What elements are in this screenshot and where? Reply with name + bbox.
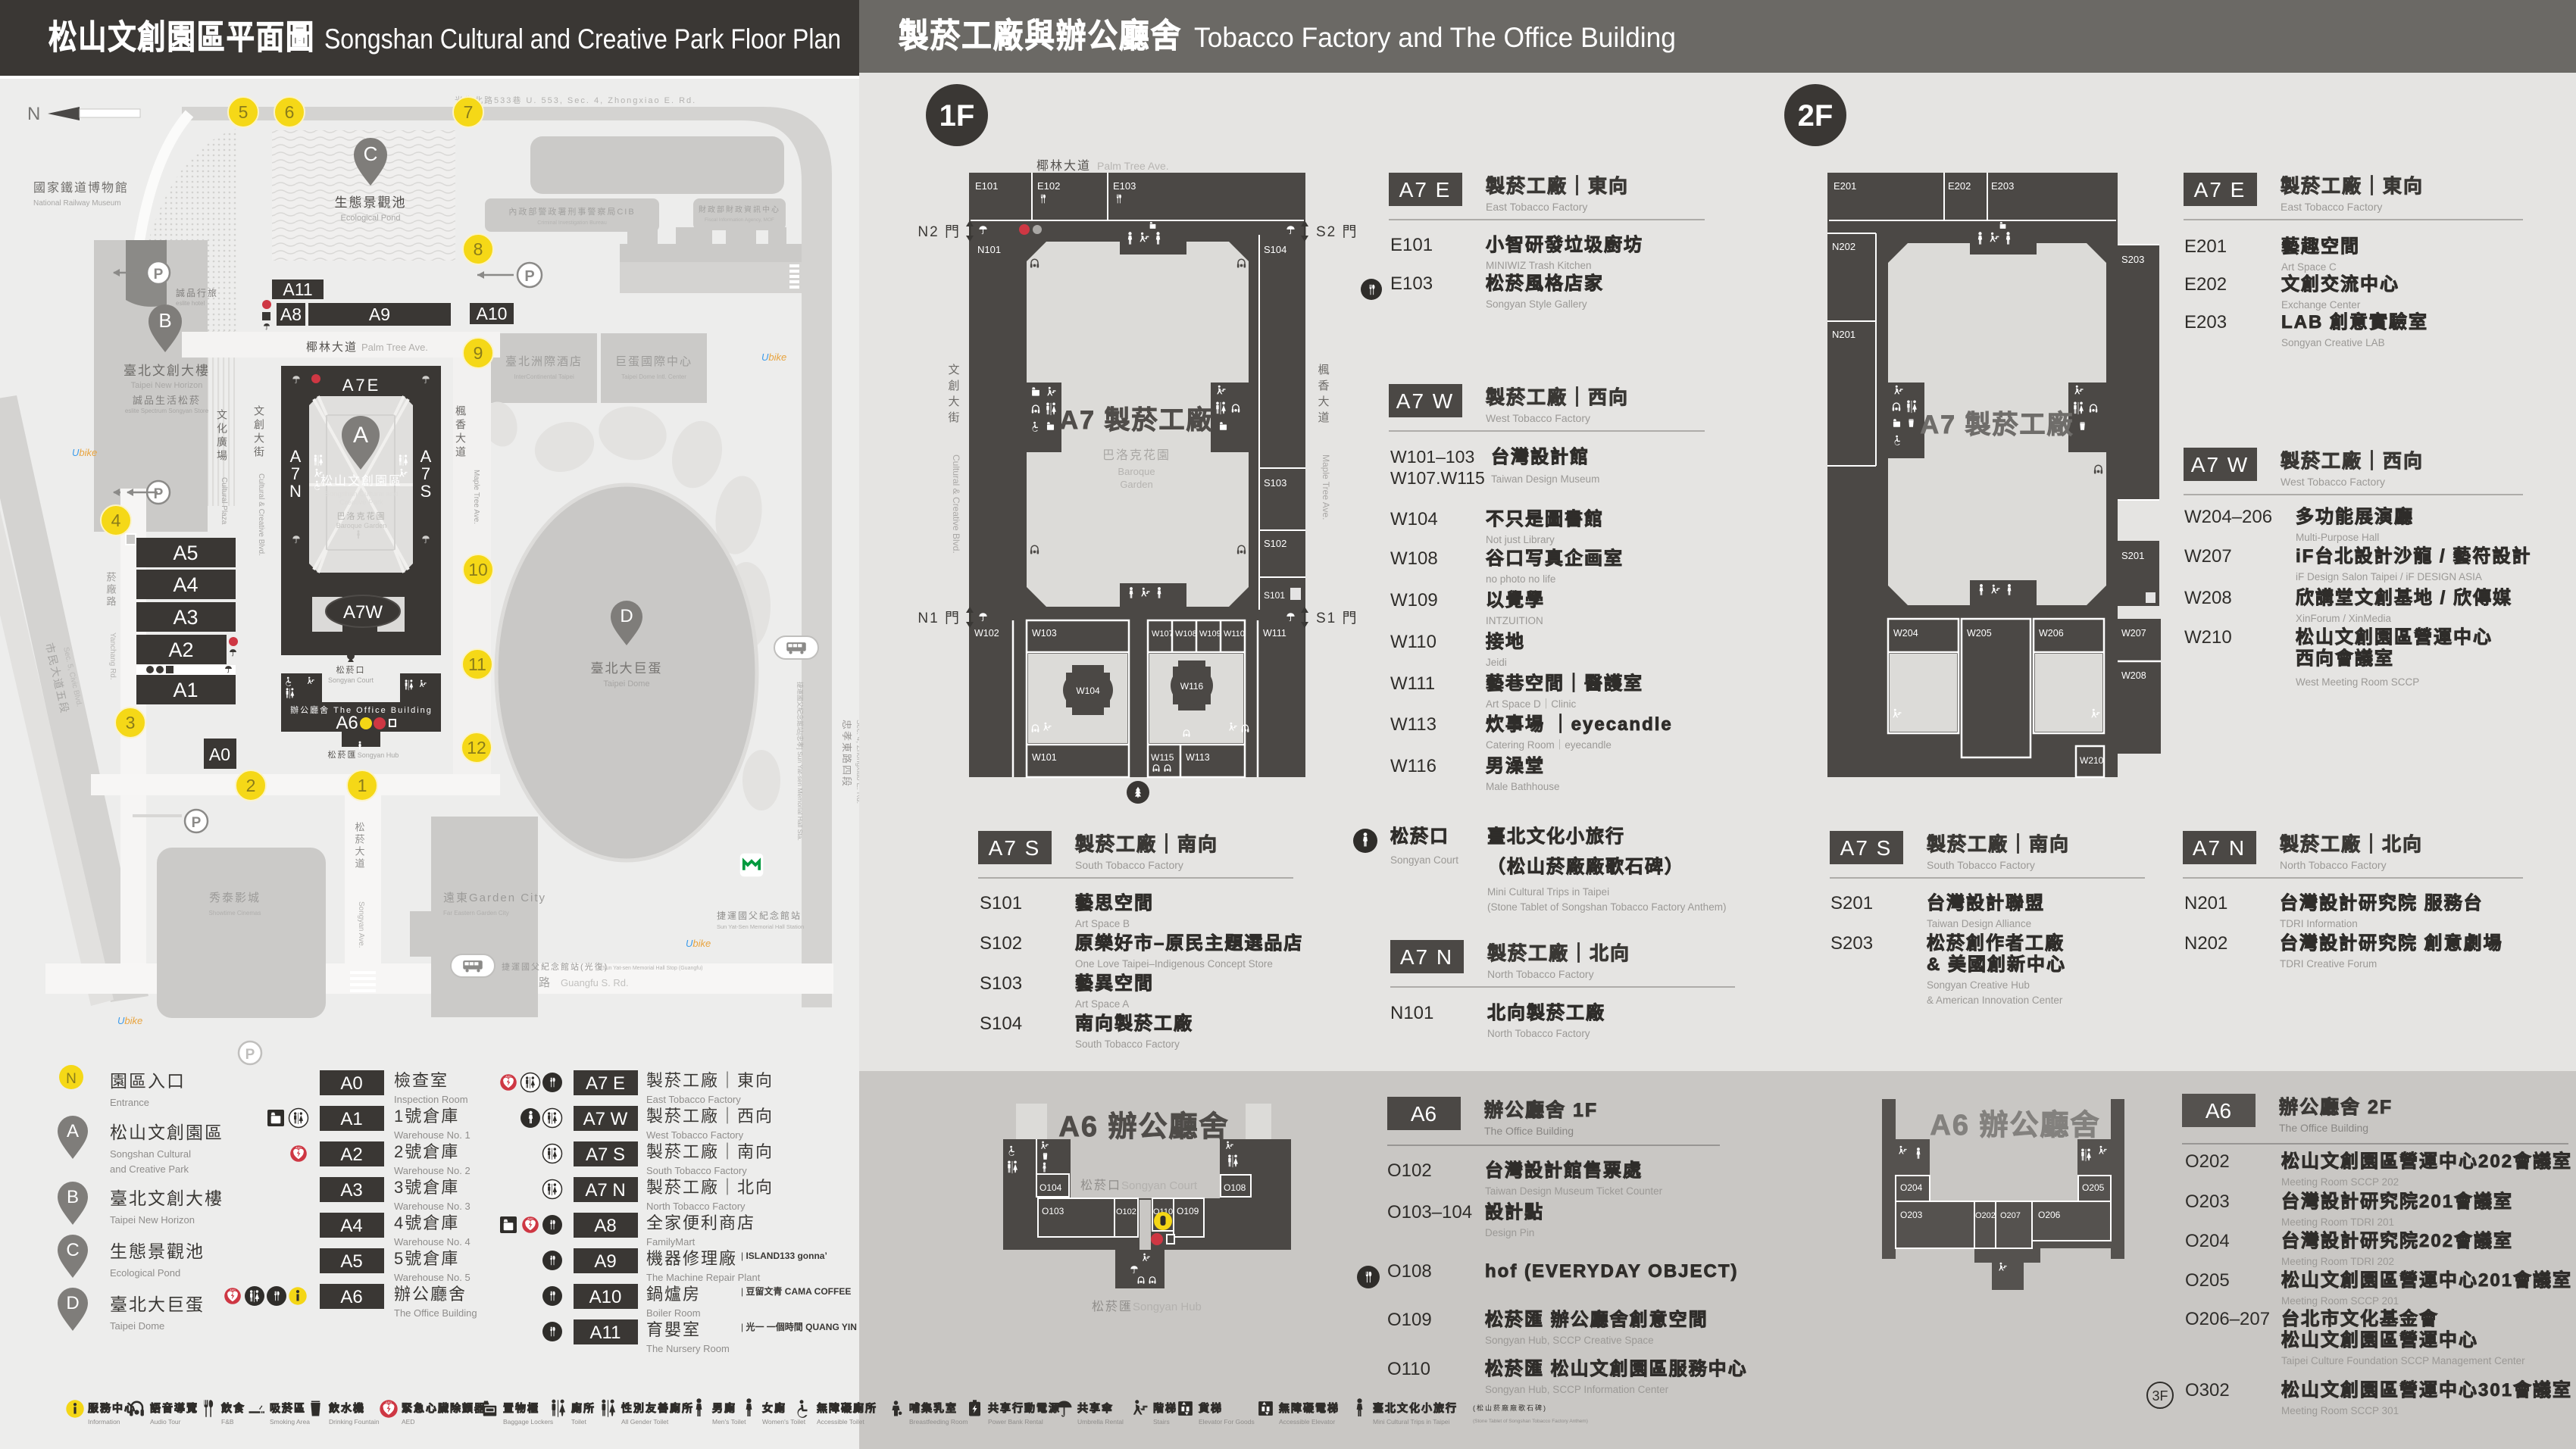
svg-text:Art Space A: Art Space A: [1075, 998, 1129, 1010]
svg-text:文化廣場: 文化廣場: [216, 409, 228, 464]
svg-text:MINIWIZ Trash Kitchen: MINIWIZ Trash Kitchen: [1486, 260, 1592, 271]
svg-text:Ecological Pond: Ecological Pond: [341, 214, 401, 223]
svg-text:臺北大巨蛋: 臺北大巨蛋: [110, 1294, 205, 1314]
svg-text:松菸匯: 松菸匯: [1092, 1300, 1133, 1313]
svg-text:財政部財政資訊中心: 財政部財政資訊中心: [699, 205, 780, 214]
svg-text:South Tobacco Factory: South Tobacco Factory: [1927, 859, 2035, 871]
svg-text:2: 2: [246, 776, 256, 795]
svg-text:| 豆留文青 CAMA COFFEE: | 豆留文青 CAMA COFFEE: [741, 1285, 851, 1297]
svg-text:Audio Tour: Audio Tour: [150, 1418, 181, 1426]
svg-text:以覺學: 以覺學: [1486, 590, 1545, 611]
svg-text:S: S: [420, 482, 432, 501]
svg-text:O109: O109: [1387, 1310, 1432, 1330]
svg-text:N2 門: N2 門: [918, 224, 961, 240]
svg-text:服務中心: 服務中心: [88, 1402, 136, 1414]
svg-text:InterContinental Taipei: InterContinental Taipei: [514, 373, 574, 380]
svg-text:South Tobacco Factory: South Tobacco Factory: [646, 1165, 747, 1176]
svg-text:哺集乳室: 哺集乳室: [909, 1402, 958, 1414]
svg-text:(Stone Tablet of Songshan Toba: (Stone Tablet of Songshan Tobacco Factor…: [1487, 901, 1726, 913]
svg-text:Cultural & Creative Blvd.: Cultural & Creative Blvd.: [257, 473, 265, 556]
svg-text:A11: A11: [590, 1323, 621, 1343]
svg-text:捷運國父紀念館站[忠孝] Sun Yat-sen Memo: 捷運國父紀念館站[忠孝] Sun Yat-sen Memorial Hall S…: [796, 682, 804, 841]
svg-text:A6 辦公廳舍: A6 辦公廳舍: [1930, 1110, 2100, 1141]
svg-text:松菸創作者工廠: 松菸創作者工廠: [1927, 932, 2065, 954]
svg-text:松山文創園區營運中心: 松山文創園區營運中心: [2296, 626, 2493, 648]
svg-text:5號倉庫: 5號倉庫: [394, 1249, 459, 1268]
svg-text:W108: W108: [1175, 629, 1197, 639]
svg-text:4: 4: [111, 511, 121, 530]
svg-text:松菸匯 辦公廳舍創意空間: 松菸匯 辦公廳舍創意空間: [1485, 1309, 1708, 1330]
svg-text:多功能展演廳: 多功能展演廳: [2296, 506, 2414, 527]
svg-text:國家鐵道博物館: 國家鐵道博物館: [33, 180, 129, 195]
svg-text:O203: O203: [1900, 1210, 1923, 1220]
svg-text:4號倉庫: 4號倉庫: [394, 1213, 459, 1232]
svg-text:松菸匯 松山文創園區服務中心: 松菸匯 松山文創園區服務中心: [1485, 1358, 1748, 1379]
svg-text:Design Pin: Design Pin: [1485, 1227, 1534, 1238]
svg-text:Tobacco Factory and The Office: Tobacco Factory and The Office Building: [1194, 22, 1676, 53]
svg-text:TDRI Creative Forum: TDRI Creative Forum: [2280, 958, 2377, 970]
svg-text:Women's Toilet: Women's Toilet: [762, 1418, 806, 1426]
svg-text:A3: A3: [173, 606, 198, 629]
svg-text:製菸工廠與辦公廳舍: 製菸工廠與辦公廳舍: [899, 17, 1182, 55]
svg-text:P: P: [245, 1047, 255, 1063]
svg-text:Songshan Cultural: Songshan Cultural: [110, 1148, 191, 1160]
svg-text:A7 製菸工廠: A7 製菸工廠: [1060, 405, 1214, 435]
svg-text:無障礙電梯: 無障礙電梯: [1279, 1402, 1340, 1414]
svg-text:製菸工廠｜西向: 製菸工廠｜西向: [646, 1107, 774, 1126]
svg-text:A7 製菸工廠: A7 製菸工廠: [1921, 410, 2074, 439]
svg-text:A4: A4: [340, 1216, 362, 1236]
svg-text:W207: W207: [2184, 546, 2232, 567]
svg-text:& 美國創新中心: & 美國創新中心: [1927, 954, 2066, 975]
svg-text:East Tobacco Factory: East Tobacco Factory: [646, 1094, 741, 1105]
svg-text:S102: S102: [1264, 538, 1286, 549]
svg-text:男廁: 男廁: [712, 1402, 736, 1414]
svg-text:Warehouse No. 5: Warehouse No. 5: [394, 1272, 470, 1283]
svg-text:誠品行旅: 誠品行旅: [176, 288, 218, 298]
svg-text:Taipei Dome: Taipei Dome: [110, 1320, 164, 1332]
svg-text:貨梯: 貨梯: [1198, 1402, 1223, 1414]
svg-text:Songshan Cultural and Creative: Songshan Cultural and Creative Park Floo…: [324, 23, 841, 55]
svg-text:A11: A11: [283, 279, 312, 299]
svg-text:Warehouse No. 1: Warehouse No. 1: [394, 1129, 470, 1141]
svg-text:楓香大道: 楓香大道: [1317, 364, 1330, 427]
svg-text:吸菸區: 吸菸區: [270, 1402, 306, 1414]
svg-text:Taipei Culture Foundation SCCP: Taipei Culture Foundation SCCP Managemen…: [2281, 1355, 2525, 1366]
svg-text:Meeting Room TDRI 202: Meeting Room TDRI 202: [2281, 1256, 2394, 1267]
svg-text:S102: S102: [980, 933, 1022, 954]
svg-text:W103: W103: [1032, 628, 1057, 639]
svg-text:O205: O205: [2185, 1270, 2230, 1291]
svg-text:A7 E: A7 E: [2194, 178, 2246, 201]
svg-text:Taiwan Design Museum Ticket Co: Taiwan Design Museum Ticket Counter: [1485, 1185, 1663, 1197]
svg-text:Elevator For Goods: Elevator For Goods: [1199, 1418, 1255, 1426]
svg-text:East Tobacco Factory: East Tobacco Factory: [1486, 201, 1587, 213]
svg-text:The Nursery Room: The Nursery Room: [646, 1343, 730, 1354]
svg-text:A9: A9: [594, 1251, 616, 1272]
svg-text:W109: W109: [1199, 629, 1221, 639]
svg-text:共享傘: 共享傘: [1077, 1402, 1114, 1414]
svg-text:S104: S104: [980, 1013, 1022, 1034]
svg-text:生態景觀池: 生態景觀池: [335, 195, 407, 210]
svg-text:A8: A8: [280, 304, 302, 324]
svg-text:The Office Building: The Office Building: [2279, 1122, 2368, 1134]
svg-text:A3: A3: [340, 1180, 362, 1201]
svg-text:Information: Information: [88, 1418, 120, 1426]
svg-text:Baroque: Baroque: [1118, 466, 1155, 477]
svg-text:A7 S: A7 S: [586, 1145, 625, 1165]
svg-text:A7 N: A7 N: [1400, 945, 1453, 969]
svg-text:6: 6: [285, 102, 295, 122]
svg-text:A9: A9: [369, 304, 390, 324]
svg-text:Cultural & Creative Blvd.: Cultural & Creative Blvd.: [951, 454, 961, 554]
svg-text:E102: E102: [1037, 180, 1060, 192]
svg-text:Songyan Court: Songyan Court: [1390, 854, 1458, 866]
svg-text:10: 10: [468, 560, 488, 579]
svg-text:廁所: 廁所: [571, 1402, 596, 1414]
svg-text:A0: A0: [340, 1073, 362, 1094]
svg-text:台灣設計館售票處: 台灣設計館售票處: [1485, 1160, 1643, 1181]
svg-text:A1: A1: [340, 1109, 362, 1129]
svg-text:Jeidi: Jeidi: [1486, 657, 1507, 668]
svg-text:南向製菸工廠: 南向製菸工廠: [1075, 1013, 1193, 1034]
svg-text:A5: A5: [173, 542, 198, 564]
svg-text:Maple Tree Ave.: Maple Tree Ave.: [472, 470, 480, 524]
svg-text:Warehouse No. 4: Warehouse No. 4: [394, 1236, 470, 1248]
svg-text:松菸口: 松菸口: [336, 664, 366, 675]
svg-text:D: D: [620, 606, 633, 626]
svg-text:Songyan Hub, SCCP Creative Spa: Songyan Hub, SCCP Creative Space: [1485, 1335, 1654, 1346]
svg-text:文創交流中心: 文創交流中心: [2281, 273, 2399, 295]
svg-text:A7 N: A7 N: [2193, 836, 2246, 860]
svg-text:台灣設計館: 台灣設計館: [1491, 446, 1590, 467]
svg-text:A6: A6: [2206, 1099, 2231, 1123]
svg-text:Songyan Hub: Songyan Hub: [358, 751, 399, 759]
svg-text:W205: W205: [1967, 628, 1992, 639]
svg-text:O205: O205: [2082, 1182, 2105, 1193]
svg-text:5: 5: [239, 102, 249, 122]
svg-text:松山文創園區平面圖: 松山文創園區平面圖: [48, 19, 315, 56]
svg-text:A8: A8: [594, 1216, 616, 1236]
svg-text:Ubike: Ubike: [761, 351, 786, 363]
svg-text:N101: N101: [977, 244, 1001, 255]
svg-text:A2: A2: [340, 1145, 362, 1165]
svg-text:O202: O202: [1975, 1211, 1996, 1220]
svg-text:性別友善廁所: 性別友善廁所: [621, 1402, 694, 1414]
svg-text:O108: O108: [1224, 1182, 1246, 1193]
svg-text:W204–206: W204–206: [2184, 507, 2272, 527]
svg-text:Songyan Hub: Songyan Hub: [1133, 1301, 1202, 1313]
svg-text:松山文創園區營運中心301會議室: 松山文創園區營運中心301會議室: [2281, 1379, 2572, 1401]
svg-text:W107.W115: W107.W115: [1390, 468, 1485, 488]
svg-text:eslite Spectrum Songyan Store: eslite Spectrum Songyan Store: [125, 408, 209, 414]
svg-text:P: P: [154, 267, 164, 283]
svg-text:North Tobacco Factory: North Tobacco Factory: [646, 1201, 746, 1212]
svg-text:育嬰室: 育嬰室: [646, 1320, 701, 1339]
svg-text:eslite hotel: eslite hotel: [176, 300, 205, 307]
svg-text:全家便利商店: 全家便利商店: [646, 1213, 755, 1232]
svg-text:台北市文化基金會: 台北市文化基金會: [2281, 1308, 2439, 1329]
svg-text:W108: W108: [1390, 548, 1438, 569]
svg-text:無障礙廁所: 無障礙廁所: [817, 1402, 877, 1414]
svg-text:Songshan Cultural and: Songshan Cultural and: [325, 490, 399, 498]
svg-text:W206: W206: [2039, 628, 2064, 639]
svg-text:A6: A6: [340, 1287, 362, 1307]
svg-text:N201: N201: [2184, 893, 2227, 913]
svg-text:製菸工廠｜北向: 製菸工廠｜北向: [646, 1178, 774, 1197]
svg-text:製菸工廠｜南向: 製菸工廠｜南向: [1074, 833, 1218, 855]
svg-text:3: 3: [126, 713, 136, 732]
svg-text:P: P: [524, 268, 534, 285]
svg-text:生態景觀池: 生態景觀池: [110, 1241, 205, 1261]
svg-text:W107: W107: [1152, 629, 1174, 639]
svg-text:All Gender Toilet: All Gender Toilet: [621, 1418, 669, 1426]
svg-text:W113: W113: [1390, 714, 1436, 735]
svg-text:W204: W204: [1893, 628, 1918, 639]
svg-text:辦公廳舍 2F: 辦公廳舍 2F: [2279, 1096, 2393, 1118]
svg-text:A6: A6: [1411, 1102, 1436, 1126]
svg-text:A7 N: A7 N: [585, 1180, 625, 1201]
svg-text:INTZUITION: INTZUITION: [1486, 615, 1543, 626]
svg-text:A6: A6: [336, 713, 358, 733]
svg-text:Songyan Style Gallery: Songyan Style Gallery: [1486, 298, 1587, 310]
svg-text:hof (EVERYDAY OBJECT): hof (EVERYDAY OBJECT): [1485, 1261, 1739, 1282]
svg-text:E101: E101: [1390, 235, 1433, 255]
svg-text:E101: E101: [975, 180, 998, 192]
svg-text:Guangfu S. Rd.: Guangfu S. Rd.: [561, 977, 629, 988]
svg-text:巴洛克花園: 巴洛克花園: [1102, 448, 1171, 462]
svg-text:S101: S101: [1264, 590, 1285, 601]
svg-text:Ubike: Ubike: [686, 938, 711, 949]
svg-text:台灣設計研究院 創意劇場: 台灣設計研究院 創意劇場: [2280, 932, 2503, 954]
svg-text:文創大街: 文創大街: [253, 405, 265, 460]
svg-text:N: N: [289, 482, 302, 501]
svg-text:台灣設計研究院202會議室: 台灣設計研究院202會議室: [2281, 1230, 2513, 1251]
svg-text:Multi-Purpose Hall: Multi-Purpose Hall: [2296, 532, 2379, 543]
svg-text:藝巷空間｜醫護室: 藝巷空間｜醫護室: [1486, 673, 1643, 694]
svg-text:製菸工廠｜東向: 製菸工廠｜東向: [646, 1071, 774, 1090]
svg-text:D: D: [66, 1293, 79, 1313]
svg-text:1號倉庫: 1號倉庫: [394, 1107, 459, 1126]
svg-text:Palm Tree Ave.: Palm Tree Ave.: [361, 342, 428, 353]
svg-text:製菸工廠｜南向: 製菸工廠｜南向: [1926, 833, 2070, 855]
svg-text:A0: A0: [209, 745, 230, 764]
svg-text:12: 12: [467, 738, 486, 757]
svg-text:文創大街: 文創大街: [947, 364, 960, 427]
svg-text:臺北文化小旅行: 臺北文化小旅行: [1373, 1402, 1458, 1414]
svg-text:W116: W116: [1390, 756, 1436, 776]
svg-text:W101: W101: [1032, 752, 1057, 763]
svg-text:O207: O207: [2000, 1211, 2021, 1220]
svg-text:O102: O102: [1387, 1160, 1432, 1181]
svg-text:辦公廳舍 The Office Building: 辦公廳舍 The Office Building: [290, 704, 433, 715]
svg-text:W111: W111: [1263, 628, 1286, 639]
svg-text:（松山菸廠廠歌石碑）: （松山菸廠廠歌石碑）: [1487, 856, 1684, 877]
svg-text:原樂好市–原民主題選品店: 原樂好市–原民主題選品店: [1075, 932, 1303, 954]
svg-text:語音導覽: 語音導覽: [150, 1402, 199, 1414]
svg-text:O203: O203: [2185, 1191, 2230, 1212]
svg-text:W110: W110: [1224, 629, 1245, 639]
svg-text:E203: E203: [2184, 312, 2227, 333]
svg-text:E203: E203: [1991, 180, 2014, 192]
svg-text:| 光一 一個時間 QUANG YIN: | 光一 一個時間 QUANG YIN: [741, 1321, 857, 1332]
svg-text:A1: A1: [173, 679, 198, 701]
svg-text:W109: W109: [1390, 590, 1438, 611]
svg-text:One Love Taipei–Indigenous Con: One Love Taipei–Indigenous Concept Store: [1075, 958, 1273, 970]
svg-text:Yanchang Rd.: Yanchang Rd.: [108, 632, 117, 680]
svg-text:Breastfeeding Room: Breastfeeding Room: [909, 1418, 968, 1426]
svg-text:The Office Building: The Office Building: [394, 1307, 477, 1319]
svg-text:S201: S201: [2121, 550, 2144, 561]
svg-text:飲水機: 飲水機: [328, 1402, 365, 1414]
svg-text:Songyan Creative LAB: Songyan Creative LAB: [2281, 337, 2385, 348]
svg-text:W207: W207: [2121, 628, 2146, 639]
svg-text:檢查室: 檢查室: [394, 1071, 449, 1090]
svg-text:7: 7: [291, 464, 300, 483]
svg-text:W111: W111: [1390, 673, 1435, 694]
svg-text:N202: N202: [2184, 933, 2227, 954]
svg-text:誠品生活松菸: 誠品生活松菸: [133, 395, 201, 406]
svg-text:Fiscal Information Agency, MOF: Fiscal Information Agency, MOF: [705, 217, 774, 223]
svg-text:松菸風格店家: 松菸風格店家: [1486, 273, 1604, 294]
svg-text:製菸工廠｜北向: 製菸工廠｜北向: [1487, 942, 1630, 964]
svg-text:O206: O206: [2038, 1210, 2061, 1220]
svg-text:女廁: 女廁: [762, 1402, 786, 1414]
svg-text:設計點: 設計點: [1485, 1201, 1544, 1223]
svg-text:Maple Tree Ave.: Maple Tree Ave.: [1321, 454, 1331, 520]
svg-text:楓香大道: 楓香大道: [455, 405, 467, 460]
svg-text:The Machine Repair Plant: The Machine Repair Plant: [646, 1272, 761, 1283]
svg-text:臺北大巨蛋: 臺北大巨蛋: [591, 661, 663, 676]
svg-text:松山文創園區營運中心: 松山文創園區營運中心: [2281, 1329, 2478, 1351]
svg-text:P: P: [154, 486, 164, 502]
svg-text:Showtime Cinemas: Showtime Cinemas: [209, 910, 261, 917]
svg-text:秀泰影城: 秀泰影城: [209, 892, 261, 904]
svg-text:East Tobacco Factory: East Tobacco Factory: [2281, 201, 2382, 213]
svg-text:| ISLAND133 gonna’: | ISLAND133 gonna’: [741, 1251, 827, 1261]
svg-text:O202: O202: [2185, 1151, 2230, 1172]
svg-text:A: A: [353, 423, 368, 448]
svg-text:S2 門: S2 門: [1316, 224, 1358, 240]
svg-text:Mini Cultural Trips in Taipei: Mini Cultural Trips in Taipei: [1487, 886, 1609, 898]
svg-text:E201: E201: [1834, 180, 1856, 192]
svg-text:E202: E202: [2184, 274, 2227, 295]
svg-text:W104: W104: [1390, 509, 1438, 529]
svg-text:椰林大道: 椰林大道: [1036, 159, 1091, 173]
svg-text:S203: S203: [2121, 254, 2144, 265]
svg-text:A5: A5: [340, 1251, 362, 1272]
svg-text:Sun Yat-sen Memorial Hall Stop: Sun Yat-sen Memorial Hall Stop (Guangfu): [602, 966, 702, 971]
svg-text:O102: O102: [1116, 1207, 1136, 1216]
svg-text:1: 1: [358, 776, 367, 795]
svg-text:接地: 接地: [1486, 632, 1525, 652]
svg-text:W113: W113: [1186, 752, 1210, 763]
svg-text:Meeting Room SCCP 301: Meeting Room SCCP 301: [2281, 1405, 2399, 1416]
svg-text:B: B: [158, 309, 171, 332]
svg-text:A7 E: A7 E: [1399, 178, 1452, 201]
svg-text:Entrance: Entrance: [110, 1097, 149, 1108]
svg-text:2F: 2F: [1798, 99, 1834, 133]
svg-text:National Railway Museum: National Railway Museum: [33, 199, 121, 208]
svg-text:置物櫃: 置物櫃: [503, 1402, 539, 1414]
svg-text:機器修理廠: 機器修理廠: [646, 1249, 737, 1268]
svg-text:P: P: [192, 815, 202, 831]
svg-text:S1 門: S1 門: [1316, 611, 1358, 626]
svg-text:E202: E202: [1948, 180, 1971, 192]
svg-text:S103: S103: [1264, 477, 1286, 489]
svg-text:A7E: A7E: [342, 376, 381, 395]
svg-text:製菸工廠｜南向: 製菸工廠｜南向: [646, 1142, 774, 1161]
svg-text:(松山菸廠廠歌石碑): (松山菸廠廠歌石碑): [1473, 1404, 1547, 1412]
svg-text:A10: A10: [477, 304, 508, 323]
svg-text:台灣設計聯盟: 台灣設計聯盟: [1927, 892, 2045, 913]
svg-text:松菸匯: 松菸匯: [328, 749, 358, 760]
svg-text:Taipei New Horizon: Taipei New Horizon: [110, 1214, 195, 1226]
svg-text:A7 E: A7 E: [586, 1073, 625, 1094]
svg-text:A10: A10: [589, 1287, 622, 1307]
svg-text:松菸大道: 松菸大道: [354, 822, 365, 870]
svg-text:Palm Tree Ave.: Palm Tree Ave.: [1097, 160, 1169, 172]
svg-text:Songyan Ave.: Songyan Ave.: [357, 901, 365, 948]
svg-text:Stairs: Stairs: [1153, 1418, 1170, 1426]
svg-text:A4: A4: [173, 573, 198, 596]
svg-text:松山文創園區營運中心202會議室: 松山文創園區營運中心202會議室: [2281, 1151, 2572, 1172]
svg-text:N101: N101: [1390, 1003, 1433, 1023]
svg-text:Catering Room｜eyecandle: Catering Room｜eyecandle: [1486, 739, 1612, 751]
svg-text:A6 辦公廳舍: A6 辦公廳舍: [1058, 1111, 1229, 1143]
svg-text:Warehouse No. 3: Warehouse No. 3: [394, 1201, 470, 1212]
svg-text:W210: W210: [2184, 627, 2232, 648]
svg-text:椰林大道: 椰林大道: [306, 341, 358, 354]
svg-text:A: A: [420, 447, 432, 466]
svg-text:7: 7: [421, 464, 430, 483]
svg-text:A7 W: A7 W: [1396, 389, 1454, 413]
svg-text:台灣設計研究院 服務台: 台灣設計研究院 服務台: [2280, 892, 2484, 913]
svg-text:W110: W110: [1390, 632, 1436, 652]
svg-text:Songyan Creative Hub: Songyan Creative Hub: [1927, 979, 2030, 991]
svg-text:C: C: [66, 1240, 79, 1260]
svg-text:Cultural Plaza: Cultural Plaza: [220, 477, 228, 525]
svg-text:Meeting Room SCCP 202: Meeting Room SCCP 202: [2281, 1176, 2399, 1188]
svg-text:O204: O204: [1900, 1182, 1923, 1193]
svg-text:FamilyMart: FamilyMart: [646, 1236, 696, 1248]
svg-text:Far Eastern Garden City: Far Eastern Garden City: [443, 910, 509, 917]
svg-text:3F: 3F: [2152, 1388, 2168, 1404]
svg-text:LAB 創意實驗室: LAB 創意實驗室: [2281, 311, 2428, 333]
svg-text:N201: N201: [1832, 329, 1855, 340]
svg-text:製菸工廠｜西向: 製菸工廠｜西向: [2280, 450, 2424, 472]
svg-text:O104: O104: [1039, 1182, 1062, 1193]
svg-text:Power Bank Rental: Power Bank Rental: [988, 1418, 1043, 1426]
svg-text:E103: E103: [1390, 273, 1433, 294]
svg-text:松山文創園區營運中心201會議室: 松山文創園區營運中心201會議室: [2281, 1269, 2572, 1291]
svg-text:Garden: Garden: [1120, 479, 1152, 490]
svg-text:捷運國父紀念館站(光復): 捷運國父紀念館站(光復): [502, 961, 608, 972]
svg-text:Umbrella Rental: Umbrella Rental: [1077, 1418, 1124, 1426]
svg-text:North Tobacco Factory: North Tobacco Factory: [1487, 1028, 1590, 1039]
svg-text:鍋爐房: 鍋爐房: [646, 1285, 701, 1304]
svg-text:Mini Cultural Trips in Taipei: Mini Cultural Trips in Taipei: [1373, 1418, 1450, 1426]
svg-text:A7 W: A7 W: [2191, 453, 2249, 476]
svg-text:W101–103: W101–103: [1390, 447, 1474, 467]
svg-text:A: A: [67, 1121, 79, 1141]
svg-text:N1 門: N1 門: [918, 611, 961, 626]
svg-text:8: 8: [474, 239, 483, 259]
svg-text:E201: E201: [2184, 236, 2227, 257]
svg-text:Songyan Court: Songyan Court: [328, 676, 374, 684]
svg-text:Songyan Hub, SCCP Information: Songyan Hub, SCCP Information Center: [1485, 1384, 1669, 1395]
svg-text:Men's Toilet: Men's Toilet: [712, 1418, 746, 1426]
